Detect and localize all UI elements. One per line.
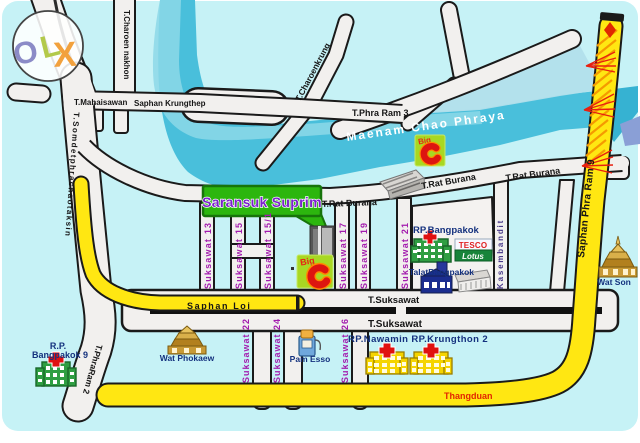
- svg-text:Thangduan: Thangduan: [444, 391, 493, 401]
- svg-text:Suksawat 22: Suksawat 22: [241, 318, 251, 383]
- svg-text:TESCO: TESCO: [459, 241, 488, 250]
- svg-text:Suksawat 15: Suksawat 15: [234, 222, 244, 289]
- svg-text:Lotus: Lotus: [462, 252, 484, 261]
- svg-text:Bangpakok 9: Bangpakok 9: [32, 350, 88, 360]
- svg-text:Pam Esso: Pam Esso: [290, 354, 331, 364]
- svg-text:Suksawat 19: Suksawat 19: [359, 222, 369, 289]
- svg-text:Wat Son: Wat Son: [597, 277, 631, 287]
- svg-text:T.Suksawat: T.Suksawat: [368, 295, 420, 306]
- svg-text:Saransuk Suprim: Saransuk Suprim: [202, 194, 322, 210]
- svg-text:Wat Phokaew: Wat Phokaew: [160, 353, 215, 363]
- svg-text:T.Mahaisawan: T.Mahaisawan: [74, 98, 127, 107]
- svg-text:T.Charoen nakhon: T.Charoen nakhon: [122, 10, 131, 79]
- svg-text:Suksawat 21: Suksawat 21: [400, 222, 410, 289]
- svg-text:Suksawat 15/1: Suksawat 15/1: [263, 212, 273, 289]
- svg-text:TalatBangpakok: TalatBangpakok: [409, 267, 474, 277]
- svg-text:RP.Bangpakok: RP.Bangpakok: [413, 225, 480, 236]
- svg-text:T.Rat Burana: T.Rat Burana: [322, 197, 378, 209]
- svg-text:Suksawat 13: Suksawat 13: [203, 222, 213, 289]
- svg-text:X: X: [52, 35, 78, 75]
- svg-text:Suksawat 24: Suksawat 24: [272, 318, 282, 383]
- svg-text:Saphan Krungthep: Saphan Krungthep: [134, 99, 206, 108]
- svg-text:Saphan Loi: Saphan Loi: [187, 301, 252, 311]
- svg-text:Suksawat 17: Suksawat 17: [338, 222, 348, 289]
- svg-text:RP.Nawamin RP.Krungthon 2: RP.Nawamin RP.Krungthon 2: [348, 334, 488, 345]
- svg-text:T.Phra Ram 3: T.Phra Ram 3: [352, 108, 409, 118]
- svg-text:Suksawat 26: Suksawat 26: [340, 318, 350, 383]
- svg-text:Kasembandit: Kasembandit: [496, 219, 505, 289]
- svg-text:T.Suksawat: T.Suksawat: [368, 319, 423, 330]
